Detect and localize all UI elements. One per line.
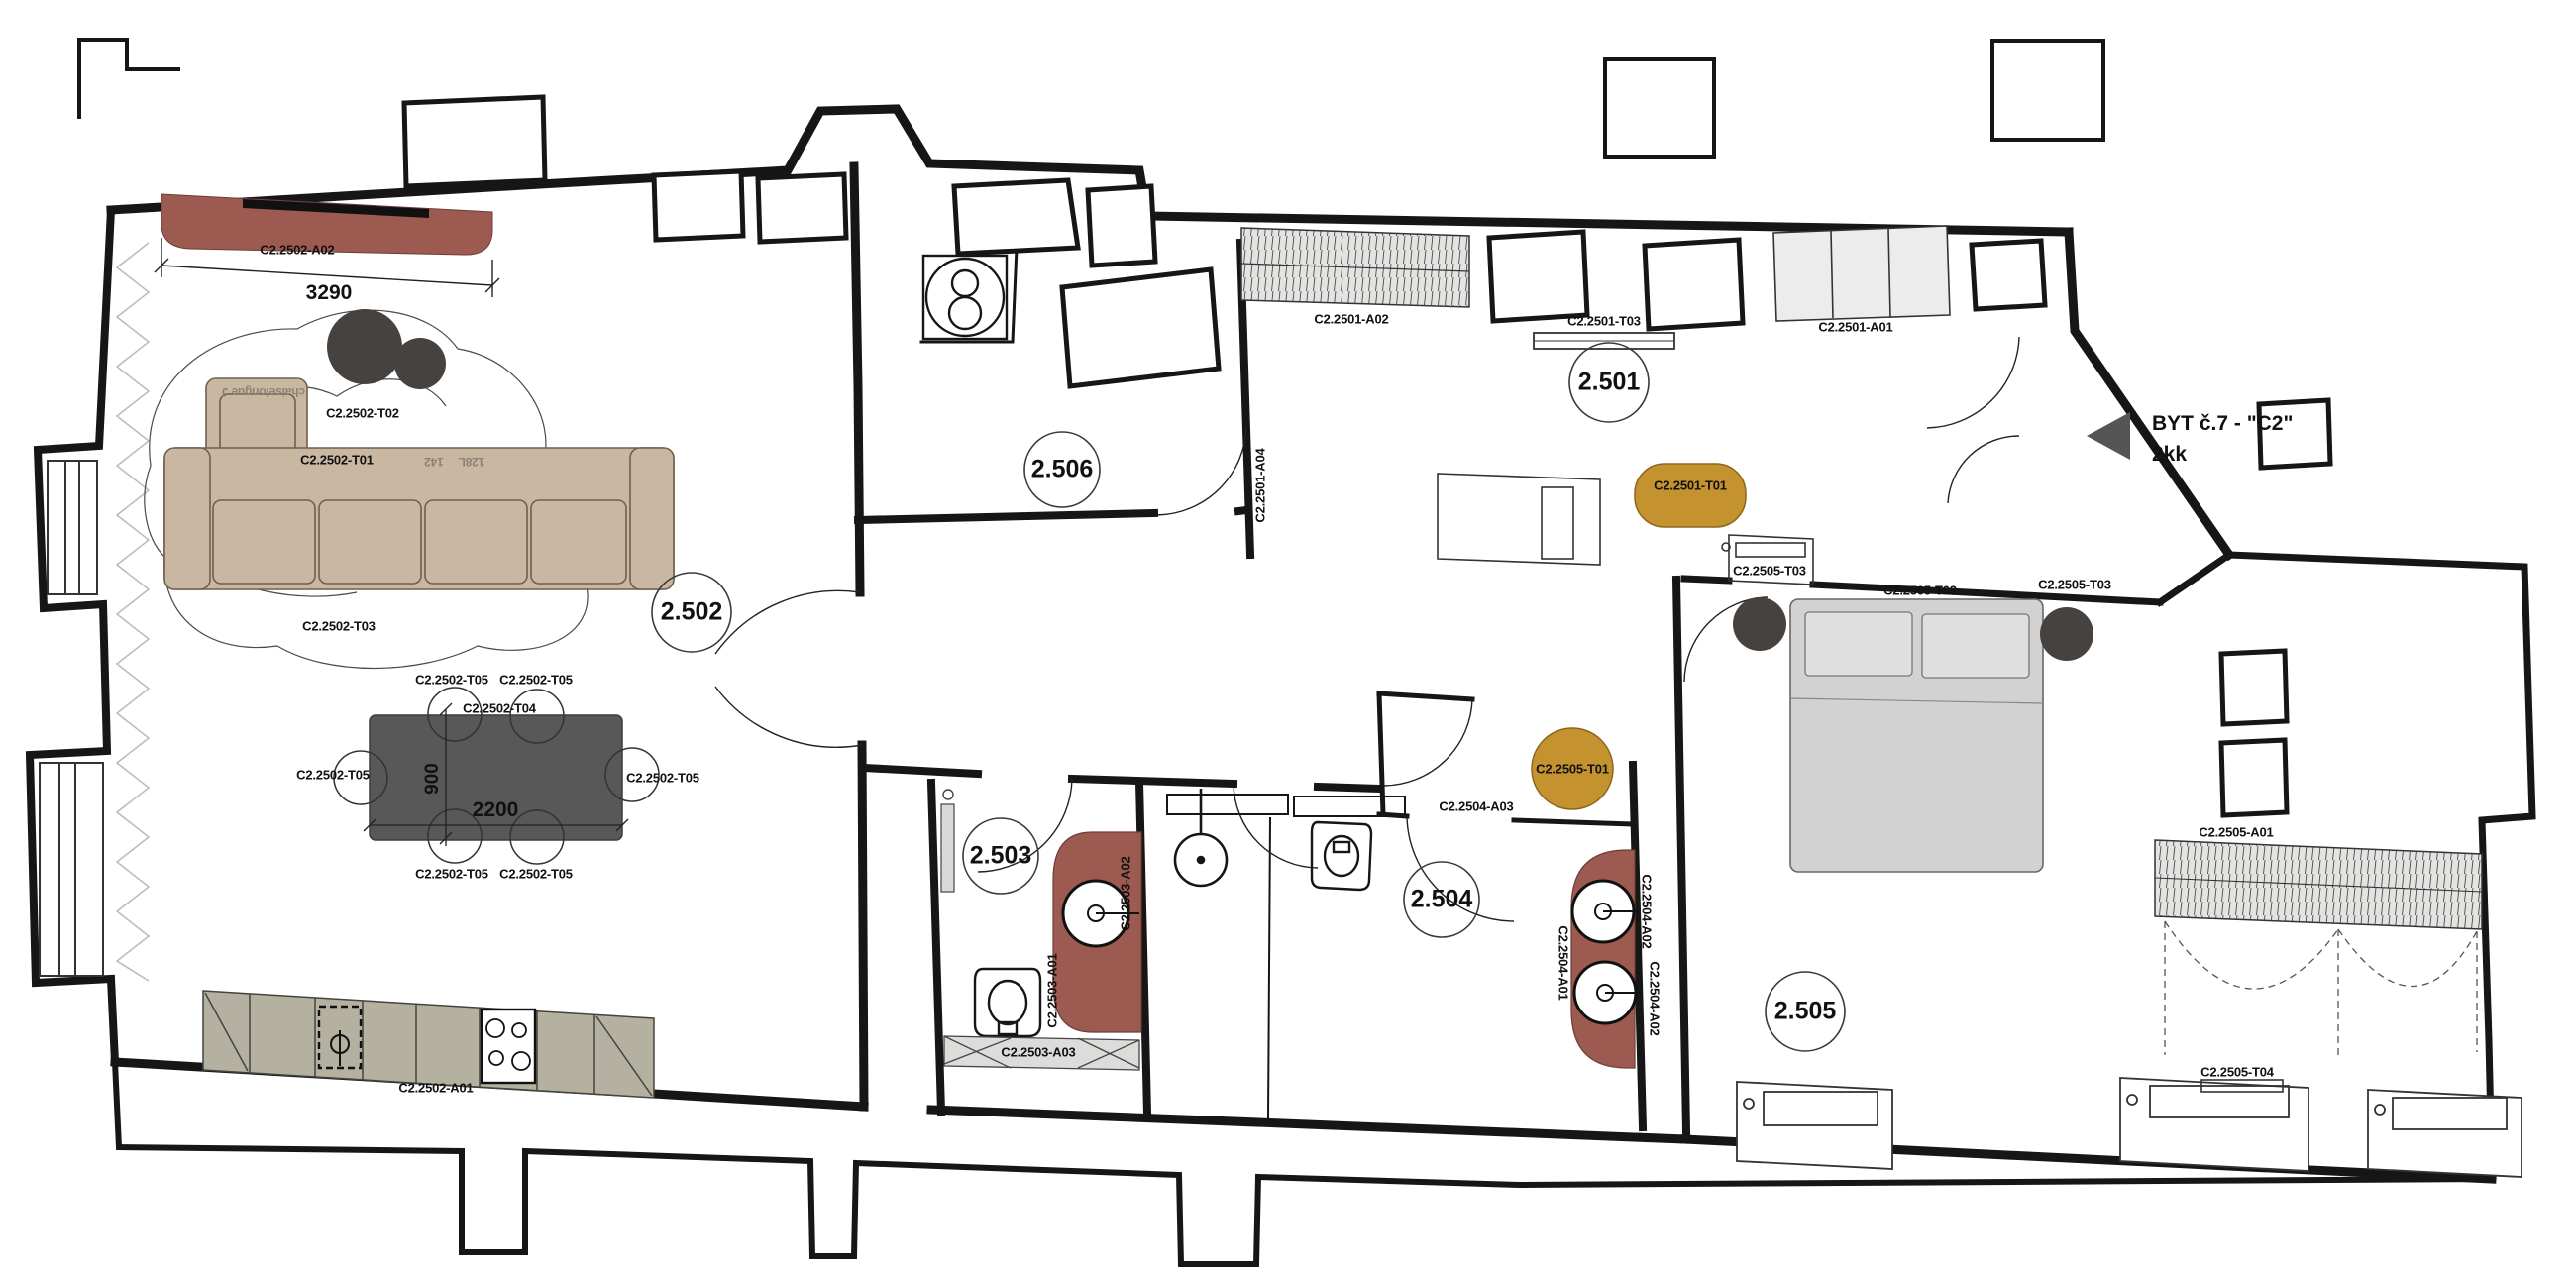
- entry-wardrobe: [1773, 226, 1950, 321]
- wc-toilet: [1312, 822, 1371, 890]
- wardrobe-door-swings: [2165, 921, 2477, 1060]
- dim-curtain: 3290: [306, 281, 353, 305]
- bath-toilet: [975, 969, 1040, 1036]
- label-bed: C2.2505-T02: [1883, 584, 1957, 598]
- sofa-chaise-note: chaiselongue J: [222, 385, 305, 399]
- label-wc-vanity: C2.2504-A01: [1556, 925, 1571, 1000]
- label-chair-4: C2.2502-T05: [626, 771, 699, 786]
- dim-table-depth: 900: [422, 763, 444, 795]
- dim-table-length: 2200: [473, 798, 519, 822]
- label-living-sofa: C2.2502-T01: [300, 453, 374, 468]
- nightstand-right: [2040, 607, 2093, 661]
- washing-machine: [923, 256, 1007, 339]
- bed: [1790, 599, 2043, 872]
- room-number-living: 2.502: [661, 598, 723, 627]
- label-wc-wall-finish: C2.2504-A03: [1439, 799, 1513, 814]
- flat-title: BYT č.7 - "C2" 2kk: [2152, 408, 2293, 470]
- label-living-rug: C2.2502-T03: [302, 619, 376, 634]
- living-sofa: [164, 378, 674, 589]
- label-chair-6: C2.2502-T05: [499, 867, 573, 882]
- flat-arrow-icon: [2087, 412, 2130, 460]
- floor-plan-drawing: [0, 0, 2576, 1276]
- bath-mirror: [941, 804, 954, 892]
- insulation-zigzag: [117, 243, 149, 981]
- flat-title-line2: 2kk: [2152, 439, 2293, 470]
- window-bays: [1737, 1078, 2522, 1177]
- label-bedroom-pouf: C2.2505-T01: [1536, 762, 1609, 777]
- label-nightstand-left: C2.2505-T03: [1733, 564, 1806, 579]
- room-number-utility: 2.506: [1031, 456, 1094, 484]
- label-hall-partition: C2.2501-A04: [1253, 448, 1268, 522]
- floor-plan-page: C2.2502-A02 3290 chaiselongue J C2.2502-…: [0, 0, 2576, 1276]
- label-chair-5: C2.2502-T05: [415, 867, 488, 882]
- room-number-hall: 2.501: [1578, 369, 1641, 397]
- label-bath-vanity: C2.2503-A01: [1045, 953, 1060, 1027]
- label-hall-pouf: C2.2501-T01: [1654, 478, 1727, 493]
- label-bedroom-wardrobe: C2.2505-A01: [2199, 825, 2273, 840]
- label-bath-wall-finish: C2.2503-A02: [1119, 856, 1133, 930]
- hall-pouf: [1635, 464, 1746, 527]
- room-number-wc: 2.504: [1411, 886, 1473, 914]
- nightstand-left: [1733, 597, 1786, 651]
- kitchen-sink: [319, 1007, 361, 1068]
- hall-closet: [1438, 474, 1600, 565]
- label-nightstand-right: C2.2505-T03: [2038, 578, 2111, 592]
- label-living-table: C2.2502-T04: [463, 701, 536, 716]
- label-chair-3: C2.2502-T05: [296, 768, 370, 783]
- label-hall-sideboard: C2.2501-T03: [1567, 314, 1641, 329]
- label-bedroom-bench: C2.2505-T04: [2200, 1065, 2274, 1080]
- sofa-module-a: 142: [424, 455, 443, 469]
- room-number-bedroom: 2.505: [1774, 998, 1837, 1026]
- label-kitchen: C2.2502-A01: [398, 1081, 473, 1096]
- room-number-bathroom: 2.503: [970, 842, 1032, 871]
- label-hall-wardrobe: C2.2501-A02: [1314, 312, 1388, 327]
- label-bath-cabinet: C2.2503-A03: [1001, 1045, 1075, 1060]
- label-living-curtain: C2.2502-A02: [260, 243, 334, 258]
- kitchen-cooktop: [482, 1010, 535, 1083]
- label-chair-1: C2.2502-T05: [415, 673, 488, 688]
- label-living-plant: C2.2502-T02: [326, 406, 399, 421]
- label-chair-2: C2.2502-T05: [499, 673, 573, 688]
- label-wc-vanity-top-2: C2.2504-A02: [1648, 961, 1663, 1035]
- flat-title-line1: BYT č.7 - "C2": [2152, 408, 2293, 439]
- hall-sideboard: [1534, 333, 1674, 349]
- label-wc-vanity-top-1: C2.2504-A02: [1640, 874, 1655, 948]
- label-entry-wardrobe: C2.2501-A01: [1818, 320, 1892, 335]
- bay-windows: [40, 461, 103, 976]
- shower-head: [1175, 789, 1227, 886]
- sofa-module-b: 128L: [459, 455, 485, 469]
- living-plant: [327, 309, 446, 389]
